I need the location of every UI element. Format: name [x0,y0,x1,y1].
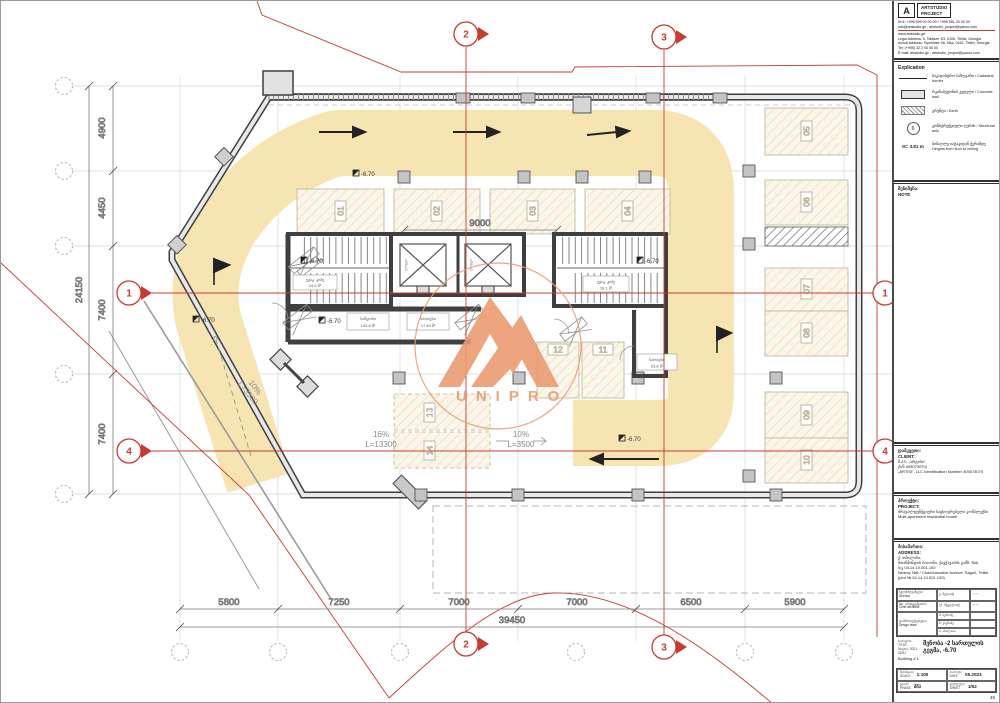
client-section: დამკვეთი: CLIENT: შ.პ.ს. „არტისი“, (ს/ნ … [894,446,999,492]
legend-item-earth: გრუნტი / Earth [898,106,995,115]
accent-divider [898,30,995,31]
phase-cell: ეტაპიPHASE მშპ [897,681,947,693]
project-line: Multi-apartment residential house [898,514,995,519]
svg-text:12: 12 [553,345,563,355]
svg-text:3: 3 [661,643,667,654]
legend-label-en: Heights from floor to ceiling [932,147,978,151]
sheet-value: 1/52 [968,684,977,689]
svg-text:ევაკ. კიბე: ევაკ. კიბე [597,279,616,284]
cadastral-line-symbol [899,78,927,79]
svg-text:-6.70: -6.70 [645,259,659,265]
axis-bubble-1-left: 1 [117,281,152,305]
axis-bubble-3-bottom: 3 [652,635,687,659]
scale-cell: მასშტაბიSCALE 1:100 [897,669,947,681]
signature-scribble: 〜〜 [970,601,996,613]
date-cell: თარიღიDATE 05.2023 [947,669,997,681]
axis-bubble-2-top: 2 [454,22,489,46]
svg-text:39450: 39450 [499,615,525,626]
svg-text:02: 02 [432,206,442,216]
date-value: 05.2023 [965,672,982,677]
wall-stub [573,97,591,113]
signature-name: ნ. კიკნაძე [937,620,970,628]
svg-text:05: 05 [802,126,812,136]
svg-text:7250: 7250 [328,597,349,608]
svg-text:23.8 მ²: 23.8 მ² [651,364,664,369]
legend-label: საკადასტრო საზღვარი [932,74,974,78]
legend-label: გრუნტი [932,109,946,113]
signature-name: ბ. ახალაია [937,628,970,636]
parking-stall-11: 11 [582,342,624,398]
svg-text:L=3500: L=3500 [508,440,535,449]
scale-value: 1:100 [917,672,929,677]
svg-text:6500: 6500 [680,597,701,608]
signature-name: გ. წულაძე [937,589,970,601]
address-section: მისამართი: ADDRESS: ქ. თბილისი, მთაწმინდ… [894,542,999,586]
svg-text:საწყობი: საწყობი [360,316,376,321]
parking-stall-08: 08 [765,311,848,356]
svg-text:16%: 16% [373,430,389,439]
svg-text:07: 07 [802,284,812,294]
structural-axis-symbol: 6 [907,122,920,135]
svg-text:2: 2 [463,30,469,41]
legend-item-concrete: რკინაბეტონის კედელი / Concrete wall [898,90,995,99]
signature-name: მ. ბერიძე [937,612,970,620]
dimensions-bottom: 5800 7250 7000 7000 6500 5900 39450 [176,597,848,631]
signature-role: მთ. არქიტექტორიChief architect [897,601,937,613]
room-label: სათავსი17.45 მ² [407,313,449,330]
svg-text:11: 11 [599,345,608,355]
parking-stall-07: 07 [765,268,848,311]
svg-text:1: 1 [882,289,888,300]
parking-stall-09: 09 [765,392,848,438]
dimensions-left: 4900 4450 7400 7400 24150 [74,82,117,498]
elevator-label: ლიფტი [469,259,473,272]
signature-cell [970,612,996,620]
svg-text:142.8 მ²: 142.8 მ² [361,323,376,328]
svg-text:19.1 მ²: 19.1 მ² [600,286,613,291]
page-number: 45 [894,694,999,701]
earth-hatch-symbol [901,106,925,115]
explication-title: Explication [898,65,995,71]
svg-text:-6.70: -6.70 [201,318,215,324]
parking-stall-01: 01 [297,189,384,234]
parking-stall-10: 10 [765,438,848,483]
phase-value: მშპ [914,684,921,690]
axis-bubble-4-left: 4 [117,439,152,463]
room-label: ევაკ. კიბე24.6 მ² [293,275,337,290]
svg-text:-6.70: -6.70 [327,319,341,325]
legend-item-axis: 6 კონსტრუქციული ღერძი / Structural axis [898,122,995,135]
svg-text:სათავსი: სათავსი [649,357,665,362]
svg-text:7400: 7400 [97,423,108,444]
note-section: შენიშვნა: NOTE [894,184,999,442]
client-line: „ARTISI“, LLC Identification Number 4050… [898,469,995,474]
svg-text:09: 09 [802,410,812,420]
room-label: სათავსი23.8 მ² [637,354,677,370]
svg-text:L=13300: L=13300 [365,440,397,449]
legend-label: სიმაღლე იატაკიდან ჭერამდე [932,142,986,146]
svg-text:5800: 5800 [218,597,239,608]
contact-line: E-mail: artstudio.ge ; artstudio_project… [898,51,995,56]
signature-role: ხელმძღვანელიDirector [897,589,937,601]
level-marker: -6.70 [319,317,341,325]
svg-text:-6.70: -6.70 [361,172,375,178]
legend-item-height: H= 3.81 m სიმაღლე იატაკიდან ჭერამდეHeigh… [898,142,995,151]
concrete-wall-symbol [901,90,925,99]
parking-stall-05: 05 [765,108,848,155]
svg-text:10%: 10% [513,430,529,439]
axis-bubble-3-top: 3 [652,25,687,49]
svg-text:7000: 7000 [566,597,587,608]
signature-role: დამპროექტებელიDesign team [897,612,937,636]
svg-text:24.6 მ²: 24.6 მ² [309,283,322,288]
wall-stub [263,71,293,95]
signature-cell [970,620,996,628]
firm-name-line: PROJECT [921,11,947,17]
firm-header: A ARTSTUDIO PROJECT მობ: +995 599 00 00 … [894,1,999,58]
parking-stall-06: 06 [765,180,848,225]
earth-hatch-strip [765,227,848,246]
svg-text:06: 06 [802,197,812,207]
svg-text:სათავსი: სათავსი [420,316,436,321]
svg-text:7400: 7400 [97,299,108,320]
project-section: პროექტი: PROJECT: მრავალფუნქციური საცხოვ… [894,496,999,538]
address-line: (plot № 04.14.10.001.100) [898,575,995,580]
svg-text:5900: 5900 [784,597,805,608]
sheet-subtitle: Building # 1 [898,656,995,661]
signature-cell [970,628,996,636]
svg-text:-6.70: -6.70 [627,437,641,443]
sheet-cell: ფურცელიSHEET 1/52 [947,681,997,693]
svg-text:-6.70: -6.70 [309,259,323,265]
title-block-panel: A ARTSTUDIO PROJECT მობ: +995 599 00 00 … [892,1,999,703]
svg-text:9000: 9000 [469,218,490,229]
firm-name: ARTSTUDIO PROJECT [917,3,951,18]
svg-text:04: 04 [623,206,633,216]
door-arc [554,319,569,334]
axis-bubble-2-bottom: 2 [454,632,489,656]
svg-text:4900: 4900 [97,117,108,138]
svg-text:10: 10 [802,455,812,465]
watermark-text: UNIPRO [456,388,568,405]
svg-text:1: 1 [126,289,132,300]
svg-text:08: 08 [802,328,812,338]
svg-text:01: 01 [336,206,346,216]
signature-scribble: 〜〜 [970,589,996,601]
svg-text:3: 3 [661,33,667,44]
firm-logo-icon: A [898,3,915,18]
svg-text:4: 4 [882,447,888,458]
svg-text:14: 14 [425,446,435,456]
svg-text:13: 13 [425,408,435,418]
upper-floor-dashed-outline [433,506,866,593]
legend-label: კონსტრუქციული ღერძი [932,124,975,128]
legend-label: რკინაბეტონის კედელი [932,90,974,94]
parking-stall-03: 03 [490,189,575,234]
parking-stall-14: 14 [394,432,490,468]
floor-plan-svg: 01 02 03 04 05 06 07 08 09 10 12 11 13 1… [1,1,896,703]
legend-item-cadastral: საკადასტრო საზღვარი / Cadastral border [898,74,995,83]
elevator-label: ლიფტი [404,259,408,272]
svg-text:2: 2 [463,640,469,651]
svg-text:03: 03 [528,206,538,216]
svg-text:ევაკ. კიბე: ევაკ. კიბე [306,277,325,282]
svg-text:17.45 მ²: 17.45 მ² [421,323,436,328]
svg-text:24150: 24150 [74,277,85,303]
note-label-en: NOTE [898,192,995,197]
svg-text:7000: 7000 [448,597,469,608]
contact-line: info@artstudio.ge ; artstudio_project@ya… [898,25,995,30]
svg-text:4450: 4450 [97,197,108,218]
signature-table: ხელმძღვანელიDirector გ. წულაძე 〜〜 მთ. არ… [896,588,997,637]
title-section: სათაური: TITLE: შიფრი: 2021-02/41 შენობა… [894,639,999,667]
signature-name: ლ. მჭედლიძე [937,601,970,613]
meta-table: მასშტაბიSCALE 1:100 თარიღიDATE 05.2023 ე… [896,668,997,693]
parking-stall-04: 04 [585,189,670,234]
legend-label-en: / Earth [947,109,958,113]
title-code: შიფრი: 2021-02/41 [898,648,919,656]
sheet-title: შენობა -2 სართულის გეგმა, -6.70 [923,641,995,655]
svg-text:4: 4 [126,447,132,458]
cadastral-border [1,1,877,703]
room-label: ევაკ. კიბე19.1 მ² [583,276,629,292]
room-label: საწყობი142.8 მ² [347,313,389,330]
explication-section: Explication საკადასტრო საზღვარი / Cadast… [894,62,999,180]
height-value: H= 3.81 m [898,144,928,149]
drawing-sheet: 01 02 03 04 05 06 07 08 09 10 12 11 13 1… [0,0,1000,703]
